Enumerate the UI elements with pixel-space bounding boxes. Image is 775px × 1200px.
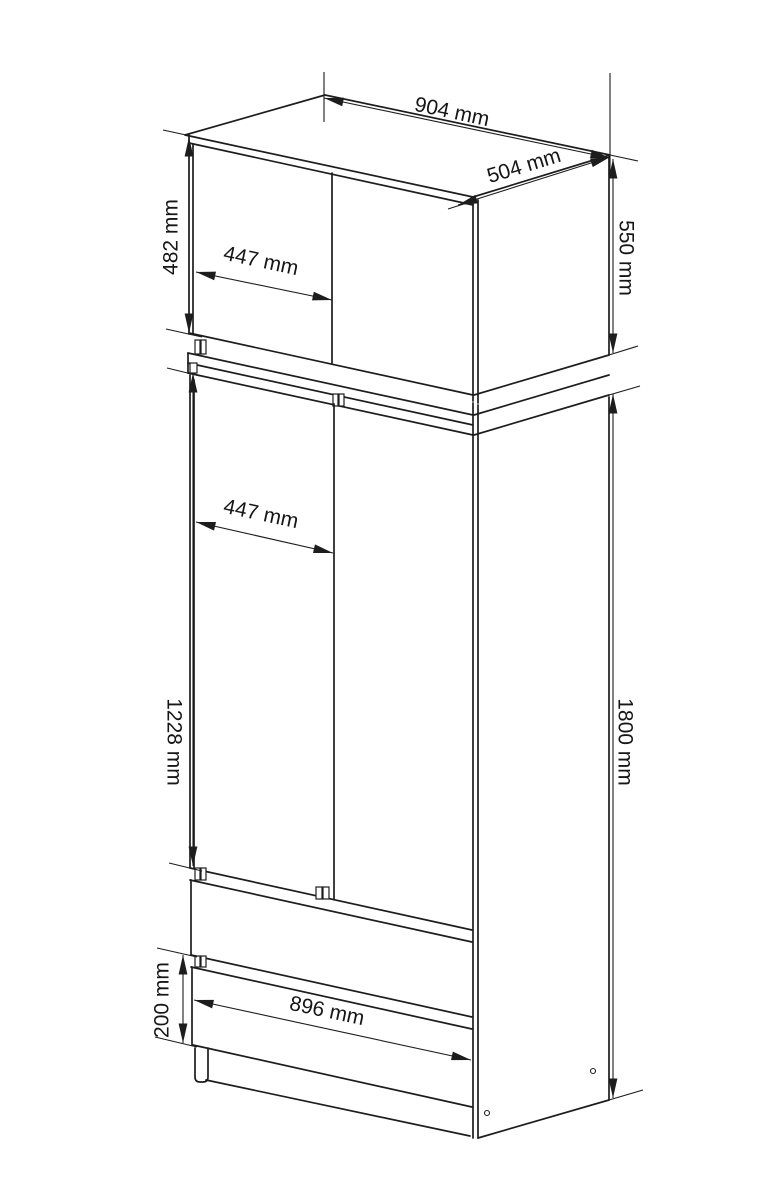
wardrobe-technical-drawing: 904 mm 504 mm 482 mm 447 mm 550 mm 447 m… [0,0,775,1200]
hinge-block [201,868,206,880]
hinge-block [195,340,200,354]
hinge-block [195,956,200,967]
drawing-canvas: 904 mm 504 mm 482 mm 447 mm 550 mm 447 m… [0,0,775,1200]
top-face [185,95,610,197]
dimension-label-upper-cabinet-height: 550 mm [615,220,638,296]
hinge-block [339,394,344,406]
dimension-upper-cabinet-height: 550 mm [609,155,638,355]
hinge-block [323,887,329,899]
dimension-label-drawer-front-height: 200 mm [151,962,174,1038]
fitting-hole [485,1111,490,1116]
hinge-block [201,340,206,354]
fitting-hole [591,1069,596,1074]
left-foot [195,1048,208,1082]
dimension-label-wardrobe-height: 1800 mm [614,698,637,786]
dimension-upper-door-height: 482 mm [160,130,203,337]
dimension-label-upper-door-height: 482 mm [160,199,183,275]
dimension-main-door-height: 1228 mm [163,368,203,871]
dimension-label-upper-door-width: 447 mm [222,242,301,280]
dimension-label-main-door-height: 1228 mm [163,698,186,786]
hinge-block [316,887,322,899]
hinge-block [201,956,206,967]
wardrobe-body [190,375,609,1138]
dimension-drawer-front-height: 200 mm [151,948,198,1047]
dimension-main-door-width: 447 mm [196,495,333,553]
dimension-upper-door-width: 447 mm [196,242,332,300]
junction-top-panel [188,340,609,435]
dimension-drawer-width: 896 mm [194,992,471,1060]
dimension-label-main-door-width: 447 mm [222,495,301,533]
dimension-wardrobe-height: 1800 mm [609,386,643,1100]
